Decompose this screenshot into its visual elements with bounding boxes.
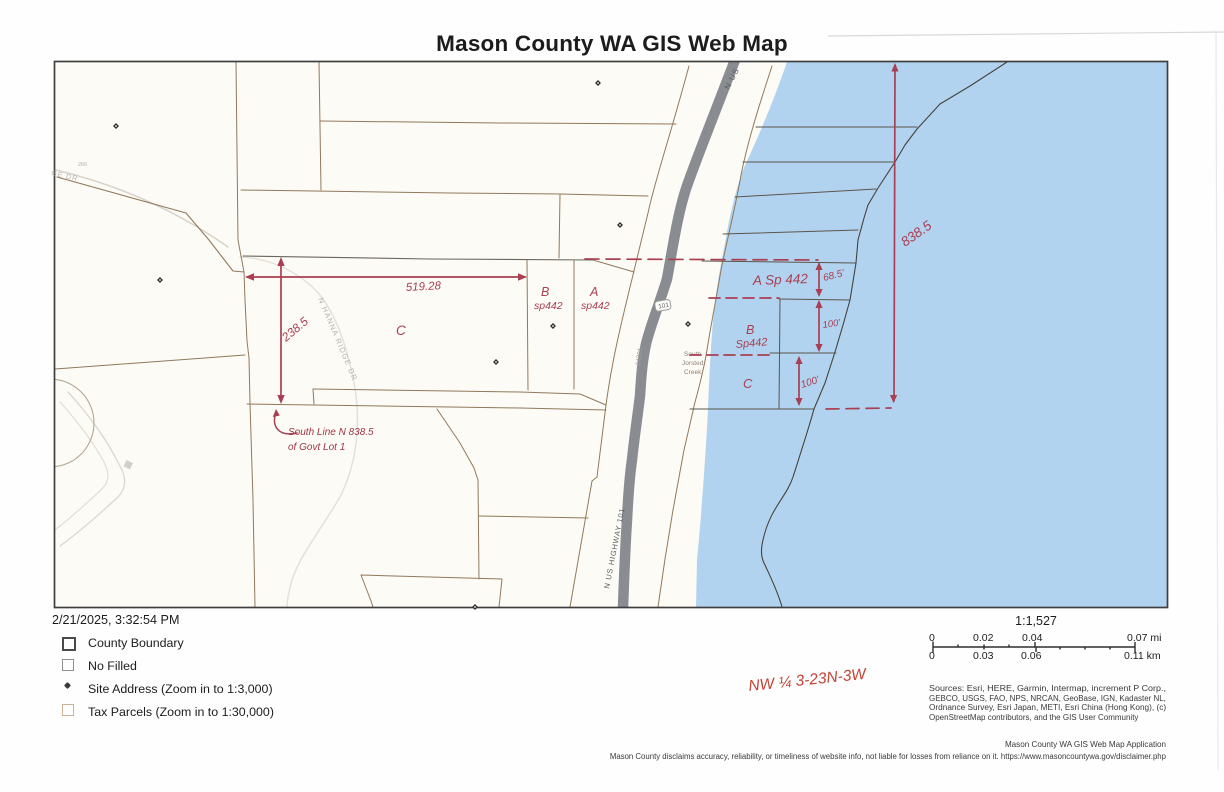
svg-text:C: C [396, 323, 406, 338]
svg-text:B: B [541, 285, 549, 299]
svg-text:sp442: sp442 [534, 300, 563, 312]
svg-text:A: A [589, 285, 598, 299]
svg-text:Creek: Creek [684, 369, 702, 376]
svg-text:519.28: 519.28 [406, 280, 442, 294]
svg-text:of Govt Lot 1: of Govt Lot 1 [288, 442, 345, 453]
svg-text:B: B [746, 323, 754, 337]
svg-text:266: 266 [78, 162, 87, 168]
svg-text:NW ¼ 3-23N-3W: NW ¼ 3-23N-3W [748, 666, 868, 695]
svg-text:Jorsted: Jorsted [682, 360, 704, 367]
svg-text:A Sp 442: A Sp 442 [752, 271, 809, 288]
svg-text:sp442: sp442 [581, 300, 610, 312]
svg-text:C: C [743, 376, 753, 391]
svg-text:South Line N 838.5: South Line N 838.5 [288, 427, 374, 438]
